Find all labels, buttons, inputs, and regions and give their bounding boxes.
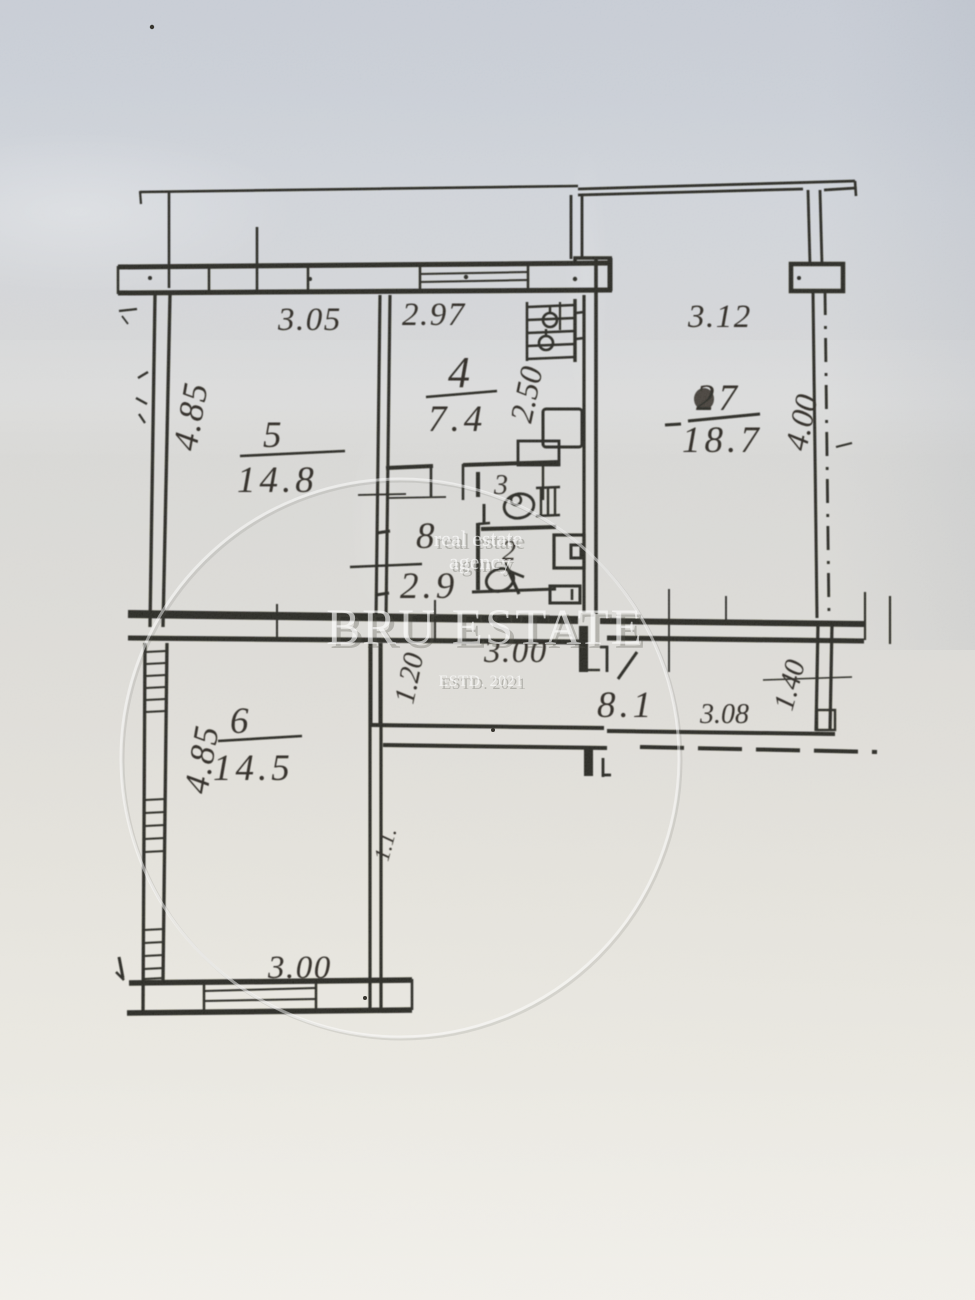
svg-text:5: 5 — [263, 415, 286, 456]
svg-text:3.05: 3.05 — [277, 302, 342, 338]
svg-text:4: 4 — [448, 348, 470, 397]
svg-text:18.7: 18.7 — [682, 420, 763, 461]
svg-text:3.00: 3.00 — [267, 950, 332, 986]
svg-text:3.08: 3.08 — [699, 699, 749, 730]
svg-text:14.5: 14.5 — [213, 748, 294, 789]
svg-text:4.85: 4.85 — [165, 378, 215, 453]
svg-text:4.00: 4.00 — [778, 391, 825, 453]
svg-text:6: 6 — [230, 701, 253, 742]
svg-text:3.12: 3.12 — [687, 299, 752, 335]
svg-text:2.97: 2.97 — [402, 297, 466, 333]
svg-text:8.1: 8.1 — [597, 685, 655, 726]
svg-text:agency: agency — [449, 549, 511, 574]
svg-text:real estate: real estate — [434, 526, 523, 551]
svg-text:7.4: 7.4 — [428, 399, 486, 440]
svg-text:ESTD. 2021: ESTD. 2021 — [439, 673, 524, 690]
svg-text:1.40: 1.40 — [768, 656, 812, 714]
svg-text:BRU ESTATE: BRU ESTATE — [326, 600, 644, 656]
svg-text:1.1.: 1.1. — [369, 825, 402, 863]
